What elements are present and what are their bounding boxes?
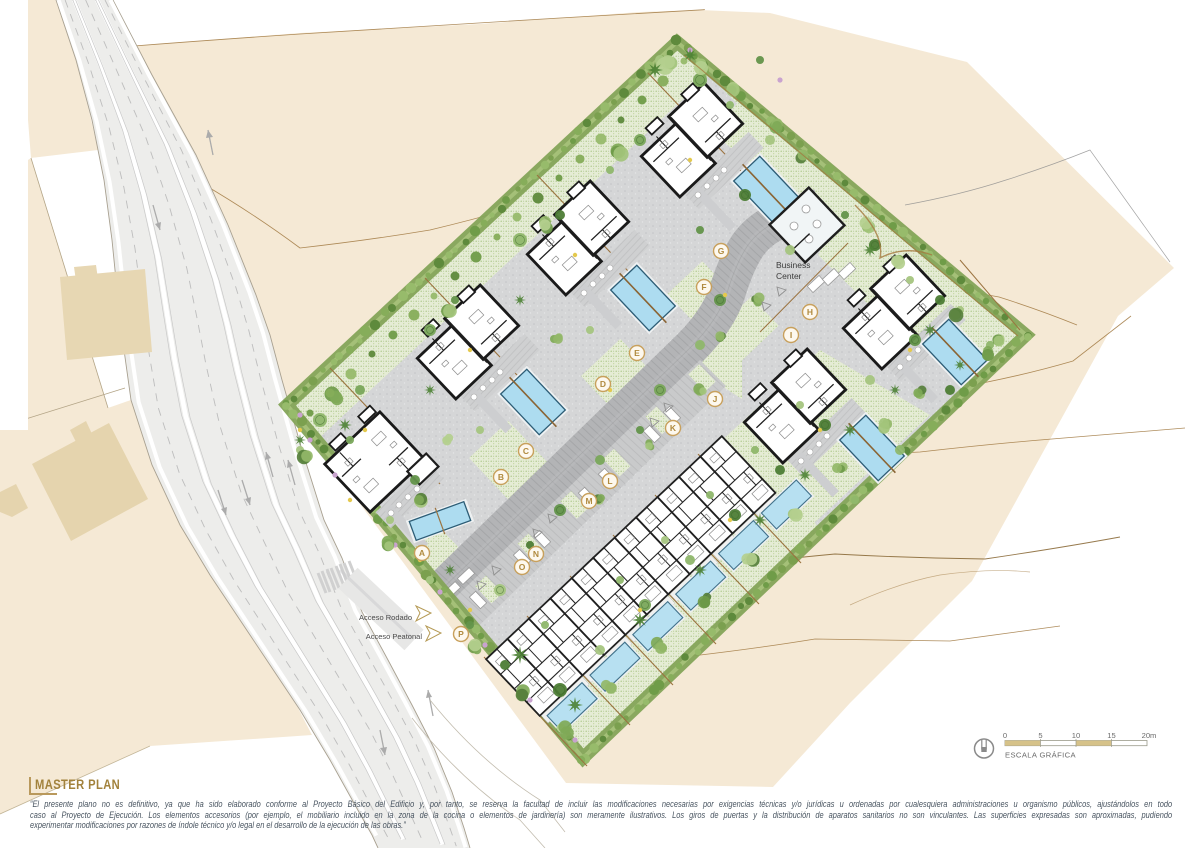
svg-text:I: I <box>790 330 792 340</box>
svg-text:G: G <box>718 246 725 256</box>
svg-text:ESCALA GRÁFICA: ESCALA GRÁFICA <box>1005 751 1077 760</box>
svg-text:N: N <box>533 549 539 559</box>
svg-text:0: 0 <box>1003 731 1007 740</box>
svg-text:H: H <box>807 307 813 317</box>
svg-text:A: A <box>419 548 425 558</box>
svg-text:O: O <box>519 562 526 572</box>
svg-text:20m: 20m <box>1142 731 1157 740</box>
svg-text:P: P <box>458 629 464 639</box>
svg-text:15: 15 <box>1107 731 1115 740</box>
svg-text:Acceso Peatonal: Acceso Peatonal <box>366 632 423 641</box>
svg-text:Center: Center <box>776 271 802 281</box>
svg-text:B: B <box>498 472 504 482</box>
svg-text:C: C <box>523 446 529 456</box>
svg-text:D: D <box>600 379 606 389</box>
svg-text:F: F <box>701 282 706 292</box>
svg-text:Business: Business <box>776 260 811 270</box>
svg-text:M: M <box>585 496 592 506</box>
svg-text:L: L <box>607 476 612 486</box>
svg-text:5: 5 <box>1038 731 1042 740</box>
svg-text:E: E <box>634 348 640 358</box>
svg-text:K: K <box>670 423 677 433</box>
svg-text:J: J <box>713 394 718 404</box>
svg-text:Acceso Rodado: Acceso Rodado <box>359 613 412 622</box>
svg-text:MASTER PLAN: MASTER PLAN <box>35 777 120 792</box>
svg-text:10: 10 <box>1072 731 1080 740</box>
